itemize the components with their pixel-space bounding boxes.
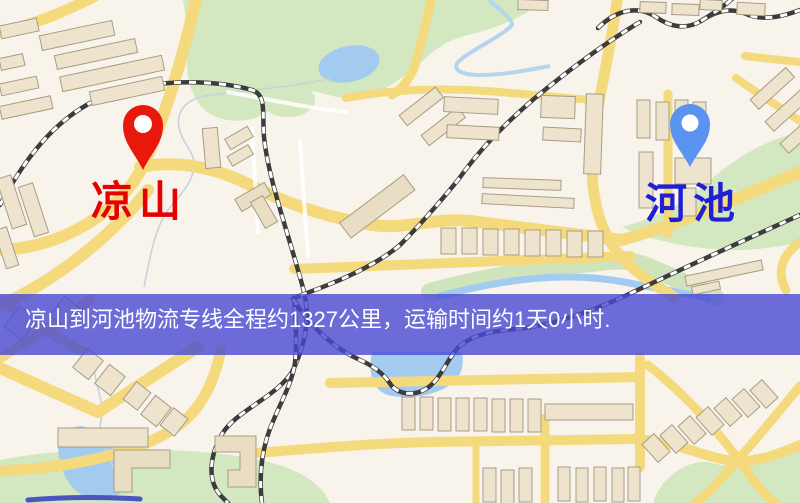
origin-label: 凉山 [91, 179, 187, 226]
map-screenshot: 凉山 河池 凉山到河池物流专线全程约1327公里，运输时间约1天0小时. [0, 0, 800, 503]
destination-label: 河池 [645, 181, 741, 228]
route-info-banner: 凉山到河池物流专线全程约1327公里，运输时间约1天0小时. [0, 294, 800, 355]
map-canvas[interactable]: 凉山 河池 [0, 0, 800, 503]
route-info-text: 凉山到河池物流专线全程约1327公里，运输时间约1天0小时. [25, 307, 800, 333]
